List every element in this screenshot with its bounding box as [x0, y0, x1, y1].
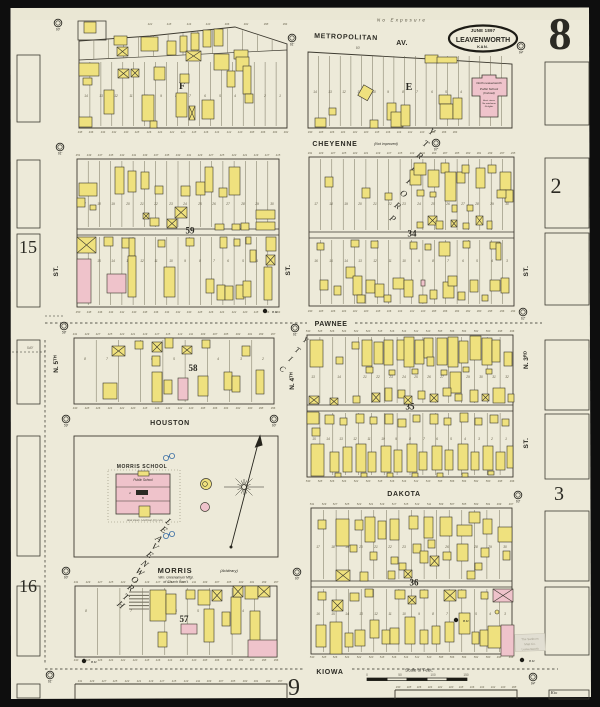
svg-text:17: 17 [316, 545, 320, 549]
svg-text:406: 406 [225, 22, 230, 26]
svg-text:297: 297 [499, 151, 505, 155]
svg-text:14: 14 [84, 94, 88, 98]
svg-text:Map Co.: Map Co. [524, 642, 536, 646]
svg-text:304: 304 [453, 130, 458, 134]
svg-text:432: 432 [176, 310, 181, 314]
svg-text:8: 8 [409, 437, 411, 441]
svg-text:11: 11 [129, 94, 133, 98]
svg-text:399: 399 [266, 679, 271, 683]
svg-text:406: 406 [261, 130, 266, 134]
svg-text:10: 10 [381, 437, 385, 441]
svg-text:308: 308 [431, 130, 436, 134]
svg-text:13: 13 [99, 94, 103, 98]
svg-text:KIOWA: KIOWA [316, 669, 343, 676]
svg-text:14: 14 [344, 259, 348, 263]
svg-text:30: 30 [479, 375, 483, 379]
svg-text:415: 415 [276, 153, 281, 157]
svg-text:23: 23 [168, 202, 173, 206]
svg-text:6: 6 [436, 437, 438, 441]
svg-text:326: 326 [331, 309, 336, 313]
svg-text:417: 417 [160, 679, 165, 683]
svg-text:No lights: No lights [485, 105, 494, 108]
svg-text:4: 4 [242, 609, 244, 613]
svg-text:421: 421 [137, 679, 142, 683]
svg-text:(Arbitrary): (Arbitrary) [220, 568, 238, 573]
svg-text:528: 528 [318, 329, 323, 333]
svg-text:424: 424 [108, 406, 113, 410]
svg-text:25: 25 [197, 202, 202, 206]
svg-text:425: 425 [113, 679, 118, 683]
svg-text:399: 399 [262, 580, 267, 584]
svg-text:8: 8 [432, 259, 434, 263]
svg-text:422: 422 [170, 130, 175, 134]
svg-text:402: 402 [236, 406, 241, 410]
svg-text:AV.: AV. [396, 40, 407, 47]
svg-text:9: 9 [387, 90, 389, 94]
svg-text:DAKOTA: DAKOTA [387, 491, 421, 498]
svg-text:405: 405 [227, 580, 232, 584]
svg-text:9: 9 [288, 675, 300, 701]
svg-text:20: 20 [357, 202, 362, 206]
svg-text:50: 50 [398, 673, 402, 677]
svg-text:447: 447 [98, 153, 103, 157]
svg-text:312: 312 [491, 685, 496, 689]
svg-text:15: 15 [97, 259, 101, 263]
svg-text:419: 419 [143, 332, 148, 336]
svg-text:402: 402 [239, 658, 244, 662]
svg-text:426: 426 [98, 658, 103, 662]
svg-text:14: 14 [313, 90, 317, 94]
svg-text:320: 320 [364, 130, 369, 134]
svg-text:62′: 62′ [521, 317, 526, 321]
svg-text:14: 14 [326, 437, 330, 441]
svg-text:13: 13 [328, 90, 332, 94]
svg-text:434: 434 [165, 310, 170, 314]
svg-text:522: 522 [357, 655, 362, 659]
svg-text:36: 36 [410, 578, 420, 588]
svg-text:2: 2 [490, 437, 493, 441]
svg-text:307: 307 [443, 151, 448, 155]
svg-text:63′: 63′ [516, 500, 521, 504]
svg-text:524: 524 [342, 329, 347, 333]
svg-text:324: 324 [341, 130, 346, 134]
svg-text:510: 510 [426, 329, 431, 333]
svg-text:518: 518 [378, 329, 383, 333]
svg-text:306: 306 [442, 130, 447, 134]
svg-text:412: 412 [227, 130, 232, 134]
svg-text:400: 400 [250, 658, 255, 662]
svg-text:416: 416 [204, 130, 209, 134]
svg-text:304: 304 [455, 309, 460, 313]
svg-text:500: 500 [486, 655, 491, 659]
svg-text:422: 422 [121, 658, 126, 662]
svg-text:411: 411 [189, 332, 194, 336]
svg-text:330: 330 [308, 309, 313, 313]
svg-text:3: 3 [478, 437, 480, 441]
svg-text:61′: 61′ [58, 152, 63, 156]
svg-text:439: 439 [143, 153, 148, 157]
svg-text:20: 20 [358, 545, 363, 549]
svg-text:409: 409 [207, 679, 212, 683]
svg-text:397: 397 [278, 679, 283, 683]
svg-text:430: 430 [73, 406, 78, 410]
svg-text:305: 305 [455, 151, 460, 155]
svg-text:15: 15 [19, 237, 37, 257]
svg-text:506: 506 [450, 479, 455, 483]
svg-text:12: 12 [342, 90, 346, 94]
svg-text:401: 401 [250, 580, 255, 584]
svg-text:526: 526 [330, 479, 335, 483]
svg-text:28: 28 [474, 202, 479, 206]
svg-text:29: 29 [489, 202, 494, 206]
svg-text:412: 412 [178, 406, 183, 410]
svg-text:401: 401 [248, 332, 253, 336]
svg-text:Kio: Kio [550, 690, 558, 695]
svg-text:433: 433 [176, 153, 181, 157]
svg-text:327: 327 [331, 151, 336, 155]
svg-text:(Colored): (Colored) [483, 91, 495, 95]
svg-text:JUNE 1897: JUNE 1897 [471, 28, 496, 33]
svg-text:8: 8 [85, 609, 87, 613]
svg-text:12: 12 [373, 259, 377, 263]
svg-text:504: 504 [462, 479, 467, 483]
svg-text:406: 406 [215, 658, 220, 662]
svg-text:9: 9 [418, 612, 420, 616]
svg-text:417: 417 [156, 580, 161, 584]
svg-text:Heat: stoves: Heat: stoves [483, 99, 496, 102]
svg-text:15: 15 [331, 612, 335, 616]
svg-text:448: 448 [87, 310, 92, 314]
svg-text:503: 503 [474, 502, 479, 506]
svg-text:11: 11 [388, 612, 392, 616]
svg-text:423: 423 [120, 332, 125, 336]
svg-text:60′: 60′ [56, 28, 61, 32]
svg-text:414: 414 [166, 406, 171, 410]
svg-text:25: 25 [413, 375, 418, 379]
svg-text:4: 4 [460, 90, 462, 94]
svg-text:313: 313 [410, 151, 415, 155]
svg-text:B.M.: B.M. [463, 619, 469, 623]
svg-text:500: 500 [486, 329, 491, 333]
svg-text:508: 508 [439, 655, 444, 659]
svg-text:414: 414 [168, 658, 173, 662]
svg-text:HOUSTON: HOUSTON [150, 420, 190, 427]
svg-text:21: 21 [362, 375, 367, 379]
svg-text:14: 14 [345, 612, 349, 616]
svg-text:417: 417 [265, 153, 270, 157]
svg-text:14: 14 [337, 375, 341, 379]
svg-text:420: 420 [131, 406, 136, 410]
svg-text:514: 514 [404, 655, 409, 659]
svg-text:16: 16 [314, 259, 318, 263]
svg-text:431: 431 [187, 153, 192, 157]
svg-text:441: 441 [132, 153, 137, 157]
svg-text:428: 428 [85, 406, 90, 410]
svg-text:410: 410 [189, 406, 194, 410]
svg-text:13: 13 [359, 612, 363, 616]
svg-text:322: 322 [353, 309, 358, 313]
svg-text:520: 520 [366, 329, 371, 333]
svg-text:440: 440 [132, 310, 137, 314]
svg-text:6: 6 [431, 90, 433, 94]
svg-text:11: 11 [388, 259, 392, 263]
svg-text:MORRIS SCHOOL: MORRIS SCHOOL [117, 464, 168, 470]
svg-text:150: 150 [463, 673, 469, 677]
svg-text:299: 299 [487, 151, 493, 155]
svg-text:328: 328 [319, 130, 324, 134]
svg-text:7: 7 [189, 94, 191, 98]
svg-text:8: 8 [549, 8, 572, 59]
svg-text:526: 526 [333, 655, 338, 659]
svg-text:527: 527 [333, 502, 338, 506]
svg-text:15: 15 [329, 259, 333, 263]
svg-text:408: 408 [201, 406, 206, 410]
svg-text:422: 422 [120, 406, 125, 410]
svg-text:502: 502 [474, 479, 479, 483]
svg-text:3: 3 [506, 259, 508, 263]
svg-text:5: 5 [219, 94, 221, 98]
svg-text:423: 423 [125, 679, 130, 683]
svg-text:530: 530 [310, 655, 315, 659]
svg-text:528: 528 [318, 479, 323, 483]
svg-text:325: 325 [342, 151, 347, 155]
svg-text:MORRIS: MORRIS [158, 566, 193, 575]
svg-text:328: 328 [407, 685, 412, 689]
svg-text:526: 526 [330, 329, 335, 333]
svg-text:14: 14 [111, 259, 115, 263]
svg-text:24: 24 [416, 202, 421, 206]
svg-text:316: 316 [386, 130, 391, 134]
svg-text:314: 314 [398, 309, 403, 313]
svg-text:CHEYENNE: CHEYENNE [312, 141, 357, 148]
svg-text:12: 12 [140, 259, 144, 263]
svg-text:PAWNEE: PAWNEE [315, 321, 348, 328]
svg-text:402: 402 [284, 130, 289, 134]
svg-text:North Leavenworth: North Leavenworth [476, 81, 502, 85]
svg-text:396: 396 [274, 658, 279, 662]
svg-text:524: 524 [345, 655, 350, 659]
svg-text:514: 514 [402, 329, 407, 333]
svg-text:27: 27 [439, 375, 444, 379]
svg-text:521: 521 [369, 502, 374, 506]
svg-text:522: 522 [354, 329, 359, 333]
svg-text:422: 422 [232, 310, 237, 314]
svg-text:404: 404 [227, 658, 232, 662]
svg-text:22: 22 [375, 375, 380, 379]
svg-text:8: 8 [432, 612, 434, 616]
svg-text:446: 446 [98, 310, 103, 314]
svg-text:505: 505 [462, 502, 467, 506]
svg-text:61′: 61′ [293, 333, 298, 337]
svg-text:326: 326 [417, 685, 422, 689]
svg-text:421: 421 [131, 332, 136, 336]
svg-text:4: 4 [464, 437, 466, 441]
svg-text:430: 430 [187, 310, 192, 314]
svg-text:426: 426 [147, 130, 152, 134]
svg-text:414: 414 [215, 130, 220, 134]
svg-text:7: 7 [416, 90, 418, 94]
svg-text:412: 412 [180, 658, 185, 662]
svg-text:59′: 59′ [64, 424, 69, 428]
svg-text:25: 25 [430, 202, 435, 206]
svg-text:512: 512 [414, 479, 419, 483]
svg-text:516: 516 [392, 655, 397, 659]
svg-text:407: 407 [213, 332, 218, 336]
svg-text:28: 28 [473, 545, 478, 549]
svg-text:11: 11 [367, 437, 371, 441]
svg-text:413: 413 [178, 332, 183, 336]
svg-text:511: 511 [427, 502, 432, 506]
svg-text:426: 426 [209, 310, 214, 314]
svg-text:310: 310 [421, 309, 426, 313]
svg-text:326: 326 [330, 130, 335, 134]
svg-text:KAN.: KAN. [477, 44, 489, 49]
svg-text:509: 509 [439, 502, 444, 506]
svg-text:420: 420 [243, 310, 248, 314]
svg-text:410: 410 [192, 658, 197, 662]
svg-text:E: E [406, 82, 413, 93]
svg-text:34: 34 [408, 229, 418, 239]
svg-text:7: 7 [106, 357, 108, 361]
svg-text:330: 330 [308, 130, 313, 134]
svg-text:498: 498 [498, 329, 503, 333]
svg-text:16: 16 [19, 576, 37, 596]
svg-text:394: 394 [283, 22, 288, 26]
svg-text:301: 301 [477, 151, 482, 155]
svg-text:27: 27 [460, 202, 465, 206]
svg-text:429: 429 [86, 580, 91, 584]
svg-text:19: 19 [111, 202, 115, 206]
svg-text:401: 401 [254, 679, 259, 683]
svg-text:30: 30 [503, 545, 507, 549]
svg-text:403: 403 [243, 679, 248, 683]
svg-text:18: 18 [329, 202, 333, 206]
svg-text:403: 403 [236, 332, 241, 336]
svg-text:428: 428 [135, 130, 140, 134]
svg-text:523: 523 [357, 502, 362, 506]
svg-text:308: 308 [512, 685, 517, 689]
svg-text:427: 427 [98, 580, 103, 584]
svg-text:407: 407 [219, 679, 224, 683]
svg-text:437: 437 [154, 153, 159, 157]
svg-text:2: 2 [551, 173, 562, 198]
svg-text:404: 404 [224, 406, 229, 410]
svg-text:431: 431 [74, 580, 79, 584]
svg-text:ST.: ST. [523, 438, 530, 449]
svg-text:398: 398 [264, 22, 269, 26]
svg-text:431: 431 [78, 679, 83, 683]
svg-text:21: 21 [373, 545, 378, 549]
svg-text:421: 421 [133, 580, 138, 584]
svg-text:61′: 61′ [290, 43, 295, 47]
svg-text:396: 396 [271, 406, 276, 410]
svg-text:318: 318 [375, 130, 380, 134]
svg-text:429: 429 [90, 679, 95, 683]
svg-text:504: 504 [462, 329, 467, 333]
svg-text:421: 421 [243, 153, 248, 157]
svg-text:Public School: Public School [133, 478, 153, 482]
svg-text:324: 324 [428, 685, 433, 689]
svg-text:529: 529 [322, 502, 327, 506]
svg-text:13: 13 [358, 259, 362, 263]
svg-text:9: 9 [418, 259, 420, 263]
svg-text:295: 295 [510, 151, 516, 155]
svg-text:Wm. Greenamyer Mfgr.: Wm. Greenamyer Mfgr. [158, 576, 193, 580]
svg-text:400: 400 [248, 406, 253, 410]
svg-text:59: 59 [186, 226, 196, 236]
svg-text:60′: 60′ [295, 577, 300, 581]
svg-text:321: 321 [364, 151, 369, 155]
svg-text:428: 428 [198, 310, 203, 314]
svg-text:58: 58 [189, 363, 199, 373]
svg-text:No Exposure: No Exposure [377, 18, 427, 23]
svg-text:9: 9 [184, 259, 186, 263]
svg-text:443: 443 [120, 153, 125, 157]
svg-text:9: 9 [160, 94, 162, 98]
svg-text:515: 515 [404, 502, 409, 506]
svg-text:310: 310 [420, 130, 425, 134]
svg-text:300: 300 [477, 309, 482, 313]
svg-text:520: 520 [369, 655, 374, 659]
svg-text:58′: 58′ [62, 331, 67, 335]
svg-text:415: 415 [172, 679, 177, 683]
svg-text:24: 24 [182, 202, 187, 206]
svg-text:499: 499 [497, 502, 502, 506]
svg-text:B.M.: B.M. [529, 659, 535, 663]
svg-text:Heat steam. Hardman pl’g cure.: Heat steam. Hardman pl’g cure. [127, 518, 164, 522]
svg-text:6: 6 [204, 94, 206, 98]
svg-text:57: 57 [180, 614, 190, 624]
svg-text:424: 424 [158, 130, 163, 134]
svg-text:328: 328 [319, 309, 324, 313]
svg-text:20: 20 [125, 202, 130, 206]
svg-text:1: 1 [279, 94, 281, 98]
svg-text:5: 5 [173, 357, 175, 361]
svg-text:64′: 64′ [531, 682, 536, 686]
svg-text:397: 397 [274, 580, 279, 584]
svg-text:409: 409 [203, 580, 208, 584]
svg-text:423: 423 [232, 153, 237, 157]
svg-text:5: 5 [475, 612, 477, 616]
svg-text:528: 528 [322, 655, 327, 659]
svg-text:LEAVENWORTH: LEAVENWORTH [456, 37, 510, 44]
svg-text:436: 436 [89, 130, 94, 134]
svg-text:4: 4 [217, 357, 219, 361]
svg-text:61′: 61′ [48, 680, 53, 684]
svg-text:The Sanborn: The Sanborn [521, 637, 539, 642]
svg-text:415: 415 [166, 332, 171, 336]
svg-text:26: 26 [426, 375, 431, 379]
svg-text:4: 4 [489, 612, 491, 616]
svg-text:418: 418 [143, 406, 148, 410]
svg-text:506: 506 [450, 655, 455, 659]
svg-text:No watchman: No watchman [482, 102, 496, 105]
svg-text:B: B [142, 496, 144, 500]
svg-text:100: 100 [430, 673, 436, 677]
svg-text:320: 320 [449, 685, 454, 689]
svg-text:331: 331 [308, 151, 313, 155]
svg-text:425: 425 [109, 580, 114, 584]
svg-text:322: 322 [353, 130, 358, 134]
svg-text:415: 415 [168, 580, 173, 584]
svg-text:407: 407 [215, 580, 220, 584]
svg-text:5: 5 [445, 90, 447, 94]
svg-text:413: 413 [184, 679, 189, 683]
svg-text:13: 13 [339, 437, 343, 441]
svg-text:308: 308 [432, 309, 437, 313]
svg-text:399: 399 [259, 332, 264, 336]
svg-text:510: 510 [427, 655, 432, 659]
